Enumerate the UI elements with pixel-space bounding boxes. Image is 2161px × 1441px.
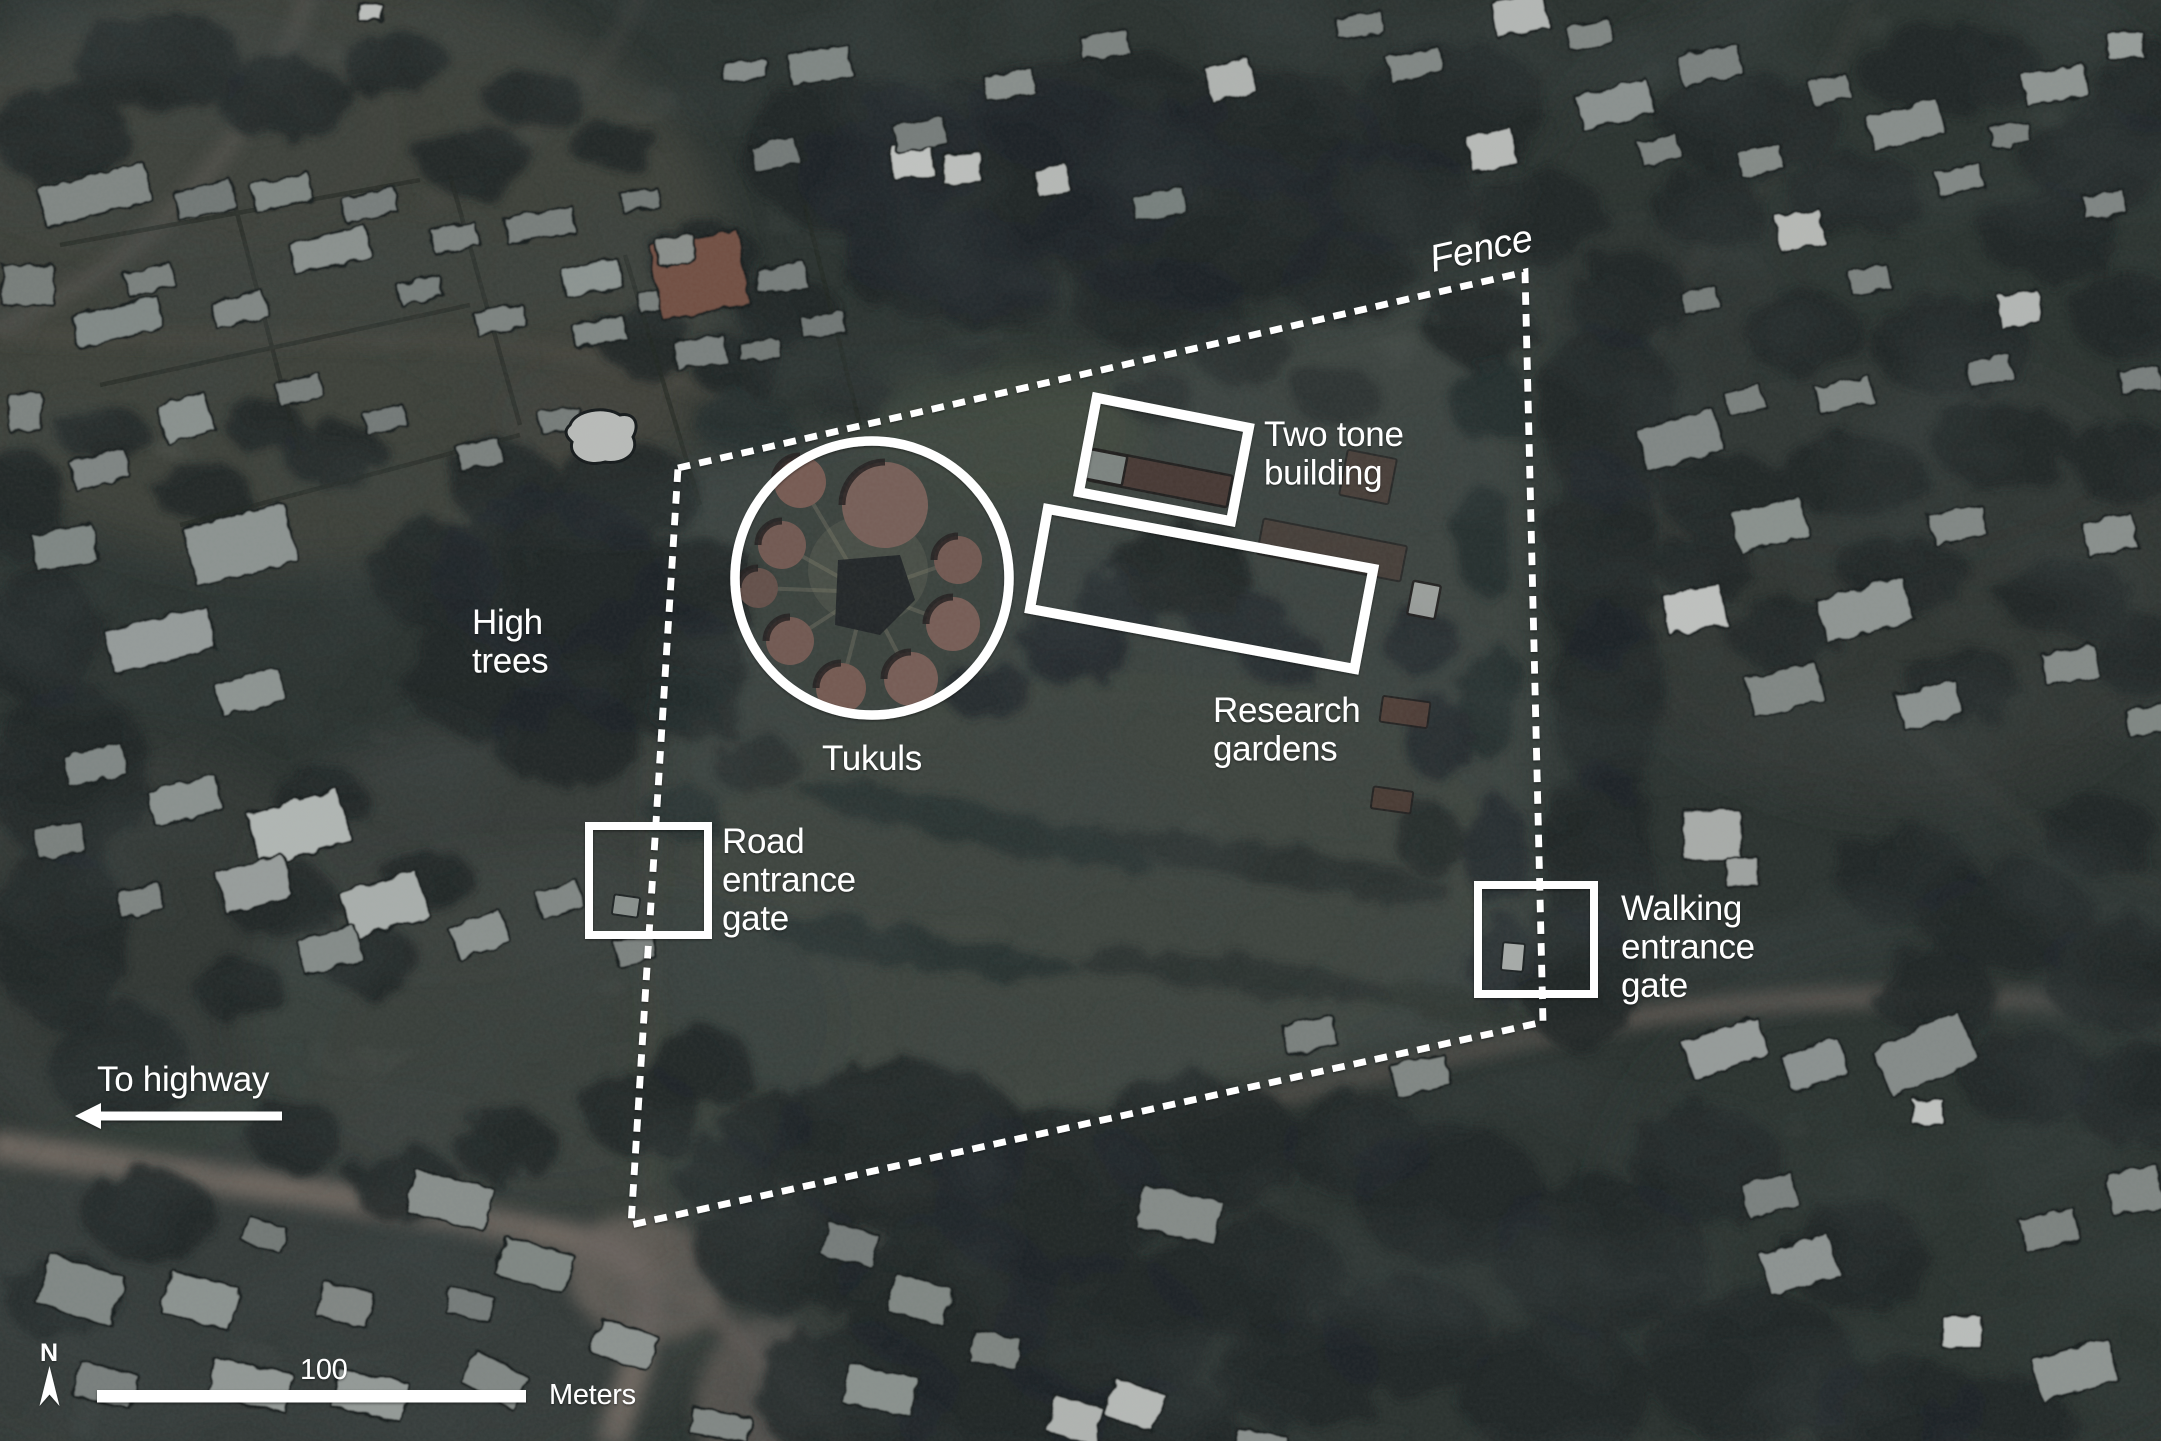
svg-text:Hightrees: Hightrees <box>472 603 548 681</box>
svg-text:100: 100 <box>300 1354 348 1386</box>
svg-text:Meters: Meters <box>549 1379 636 1411</box>
svg-text:Tukuls: Tukuls <box>822 739 922 778</box>
svg-text:To highway: To highway <box>97 1060 270 1099</box>
svg-text:N: N <box>40 1339 58 1367</box>
